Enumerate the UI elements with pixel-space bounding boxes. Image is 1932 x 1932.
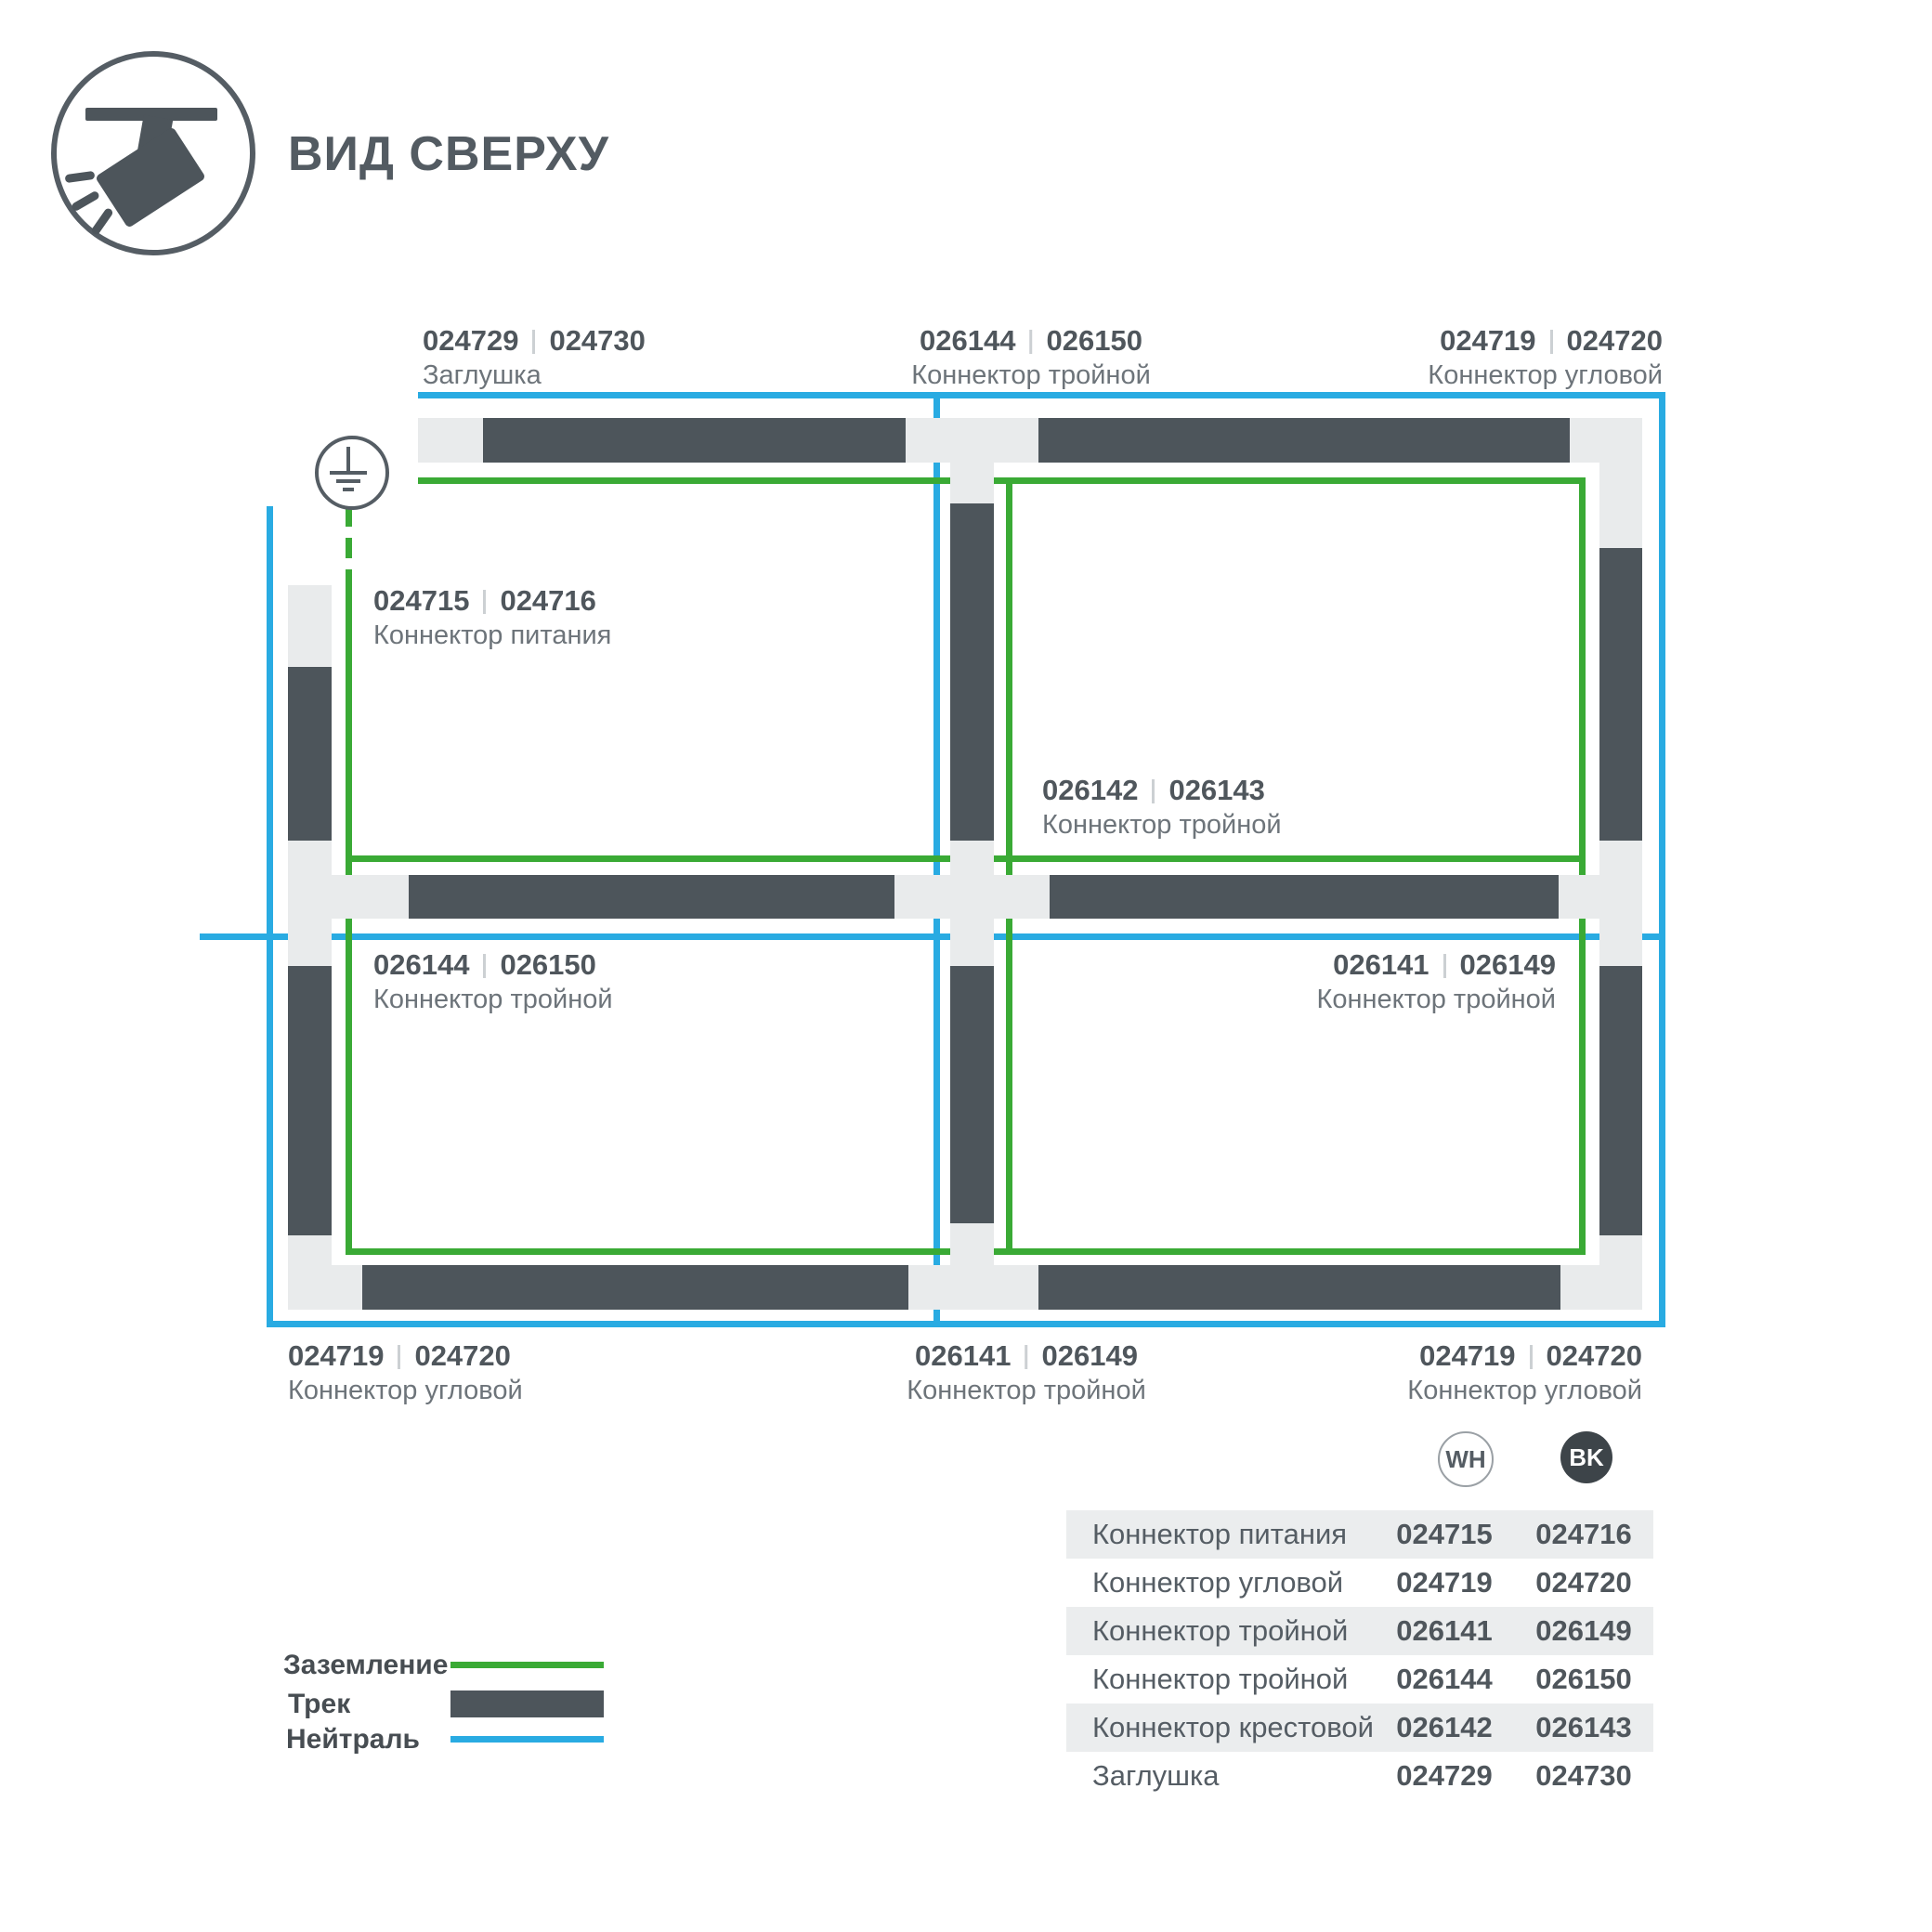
part-name: Коннектор угловой — [1407, 1376, 1642, 1405]
parts-table: Коннектор питания 024715 024716 Коннекто… — [1066, 1510, 1653, 1800]
code-separator — [532, 330, 535, 354]
legend-label-ground: Заземление — [283, 1650, 448, 1681]
track-segment — [950, 503, 994, 841]
part-code-bk: 024716 — [500, 584, 595, 617]
ground-symbol-bar — [336, 479, 360, 483]
track-light-icon — [51, 51, 255, 255]
label-corner-connector-bottom-left: 024719024720 Коннектор угловой — [288, 1340, 523, 1405]
track-segment — [1599, 966, 1642, 1235]
code-separator — [1530, 1345, 1533, 1369]
page-title: ВИД СВЕРХУ — [288, 126, 609, 182]
part-name-cell: Коннектор тройной — [1066, 1663, 1375, 1696]
track-segment — [1599, 548, 1642, 841]
neutral-line-right — [1659, 392, 1665, 1327]
ground-line-left — [346, 583, 352, 1255]
legend-swatch-ground-line — [450, 1662, 604, 1668]
part-name-cell: Коннектор крестовой — [1066, 1711, 1375, 1744]
legend-swatch-track-bar — [450, 1690, 604, 1717]
wh-code-cell: 026141 — [1375, 1614, 1514, 1648]
icon-light-ray — [90, 207, 114, 236]
ground-line-dashed — [346, 506, 352, 586]
legend-swatch-neutral-line — [450, 1736, 604, 1743]
label-t-connector-right: 026141026149 Коннектор тройной — [1316, 949, 1556, 1014]
ground-symbol-bar — [343, 488, 354, 491]
part-name: Коннектор угловой — [288, 1376, 523, 1405]
ground-symbol-stem — [346, 447, 350, 473]
badge-white-variant: WH — [1438, 1431, 1494, 1487]
track-segment — [362, 1265, 908, 1310]
code-separator — [1443, 954, 1446, 978]
badge-bk-text: BK — [1569, 1443, 1604, 1472]
bk-code-cell: 024730 — [1514, 1759, 1653, 1793]
wh-code-cell: 024729 — [1375, 1759, 1514, 1793]
part-code-wh: 026141 — [915, 1339, 1011, 1372]
table-row: Заглушка 024729 024730 — [1066, 1752, 1653, 1800]
track-segment — [288, 667, 332, 841]
track-segment — [1050, 875, 1559, 919]
part-code-wh: 026144 — [373, 948, 469, 981]
part-code-bk: 024720 — [1547, 1339, 1642, 1372]
part-name: Коннектор тройной — [907, 1376, 1146, 1405]
track-segment — [950, 966, 994, 1223]
code-separator — [1029, 330, 1032, 354]
bk-code-cell: 026150 — [1514, 1663, 1653, 1696]
neutral-line-top — [418, 392, 1665, 398]
legend-label-track: Трек — [288, 1689, 350, 1720]
part-code-bk: 026150 — [500, 948, 595, 981]
ground-symbol-bar — [330, 471, 367, 475]
code-separator — [483, 590, 486, 614]
part-name: Коннектор тройной — [1316, 985, 1556, 1014]
part-code-bk: 026143 — [1168, 774, 1264, 806]
part-code-bk: 024720 — [1567, 324, 1663, 357]
label-corner-connector-bottom-right: 024719024720 Коннектор угловой — [1407, 1340, 1642, 1405]
track-segment — [483, 418, 906, 463]
part-name-cell: Коннектор тройной — [1066, 1614, 1375, 1648]
part-code-wh: 024715 — [373, 584, 469, 617]
part-name-cell: Коннектор питания — [1066, 1518, 1375, 1551]
table-row: Коннектор питания 024715 024716 — [1066, 1510, 1653, 1559]
part-name: Коннектор питания — [373, 620, 611, 650]
bk-code-cell: 024716 — [1514, 1518, 1653, 1551]
ground-line-center — [1006, 477, 1012, 1255]
bk-code-cell: 024720 — [1514, 1566, 1653, 1599]
part-code-bk: 026149 — [1460, 948, 1556, 981]
wh-code-cell: 026142 — [1375, 1711, 1514, 1744]
badge-wh-text: WH — [1445, 1445, 1485, 1474]
part-code-wh: 024719 — [1419, 1339, 1515, 1372]
icon-light-ray — [65, 171, 96, 183]
label-t-connector-bottom: 026141026149 Коннектор тройной — [907, 1340, 1146, 1405]
wh-code-cell: 024715 — [1375, 1518, 1514, 1551]
track-segment — [1038, 1265, 1560, 1310]
table-row: Коннектор крестовой 026142 026143 — [1066, 1704, 1653, 1752]
page: ВИД СВЕРХУ 024729024730 Заглушка 0261440… — [0, 0, 1932, 1932]
part-code-wh: 024729 — [423, 324, 518, 357]
label-t-connector-top: 026144026150 Коннектор тройной — [911, 325, 1151, 390]
part-name: Коннектор тройной — [373, 985, 613, 1014]
table-row: Коннектор тройной 026141 026149 — [1066, 1607, 1653, 1655]
part-name: Коннектор тройной — [911, 360, 1151, 390]
label-cross-connector: 026142026143 Коннектор тройной — [1042, 775, 1282, 840]
badge-black-variant: BK — [1560, 1431, 1612, 1483]
ground-line-top — [418, 477, 1586, 484]
wh-code-cell: 026144 — [1375, 1663, 1514, 1696]
part-name: Коннектор тройной — [1042, 810, 1282, 840]
legend-label-neutral: Нейтраль — [286, 1724, 420, 1756]
track-segment — [1038, 418, 1570, 463]
track-segment — [409, 875, 894, 919]
label-corner-connector-top-right: 024719024720 Коннектор угловой — [1428, 325, 1663, 390]
neutral-line-left — [267, 506, 273, 1327]
code-separator — [1152, 779, 1155, 803]
part-name: Заглушка — [423, 360, 646, 390]
part-code-wh: 026141 — [1333, 948, 1429, 981]
ground-line-right — [1579, 477, 1586, 1255]
neutral-line-middle — [200, 933, 1663, 940]
table-row: Коннектор угловой 024719 024720 — [1066, 1559, 1653, 1607]
neutral-line-bottom — [267, 1321, 1665, 1327]
bk-code-cell: 026149 — [1514, 1614, 1653, 1648]
wh-code-cell: 024719 — [1375, 1566, 1514, 1599]
part-code-wh: 026142 — [1042, 774, 1138, 806]
part-code-wh: 024719 — [288, 1339, 384, 1372]
code-separator — [1550, 330, 1553, 354]
part-code-bk: 026149 — [1041, 1339, 1137, 1372]
part-code-wh: 024719 — [1440, 324, 1535, 357]
part-code-bk: 026150 — [1046, 324, 1142, 357]
code-separator — [398, 1345, 400, 1369]
part-name-cell: Коннектор угловой — [1066, 1566, 1375, 1599]
part-code-bk: 024720 — [414, 1339, 510, 1372]
part-code-wh: 026144 — [920, 324, 1015, 357]
table-row: Коннектор тройной 026144 026150 — [1066, 1655, 1653, 1704]
track-segment — [288, 966, 332, 1235]
code-separator — [483, 954, 486, 978]
code-separator — [1025, 1345, 1027, 1369]
label-power-connector: 024715024716 Коннектор питания — [373, 585, 611, 650]
part-name: Коннектор угловой — [1428, 360, 1663, 390]
part-name-cell: Заглушка — [1066, 1759, 1375, 1793]
part-code-bk: 024730 — [549, 324, 645, 357]
label-t-connector-left: 026144026150 Коннектор тройной — [373, 949, 613, 1014]
icon-light-ray — [71, 190, 100, 213]
label-end-cap: 024729024730 Заглушка — [423, 325, 646, 390]
bk-code-cell: 026143 — [1514, 1711, 1653, 1744]
